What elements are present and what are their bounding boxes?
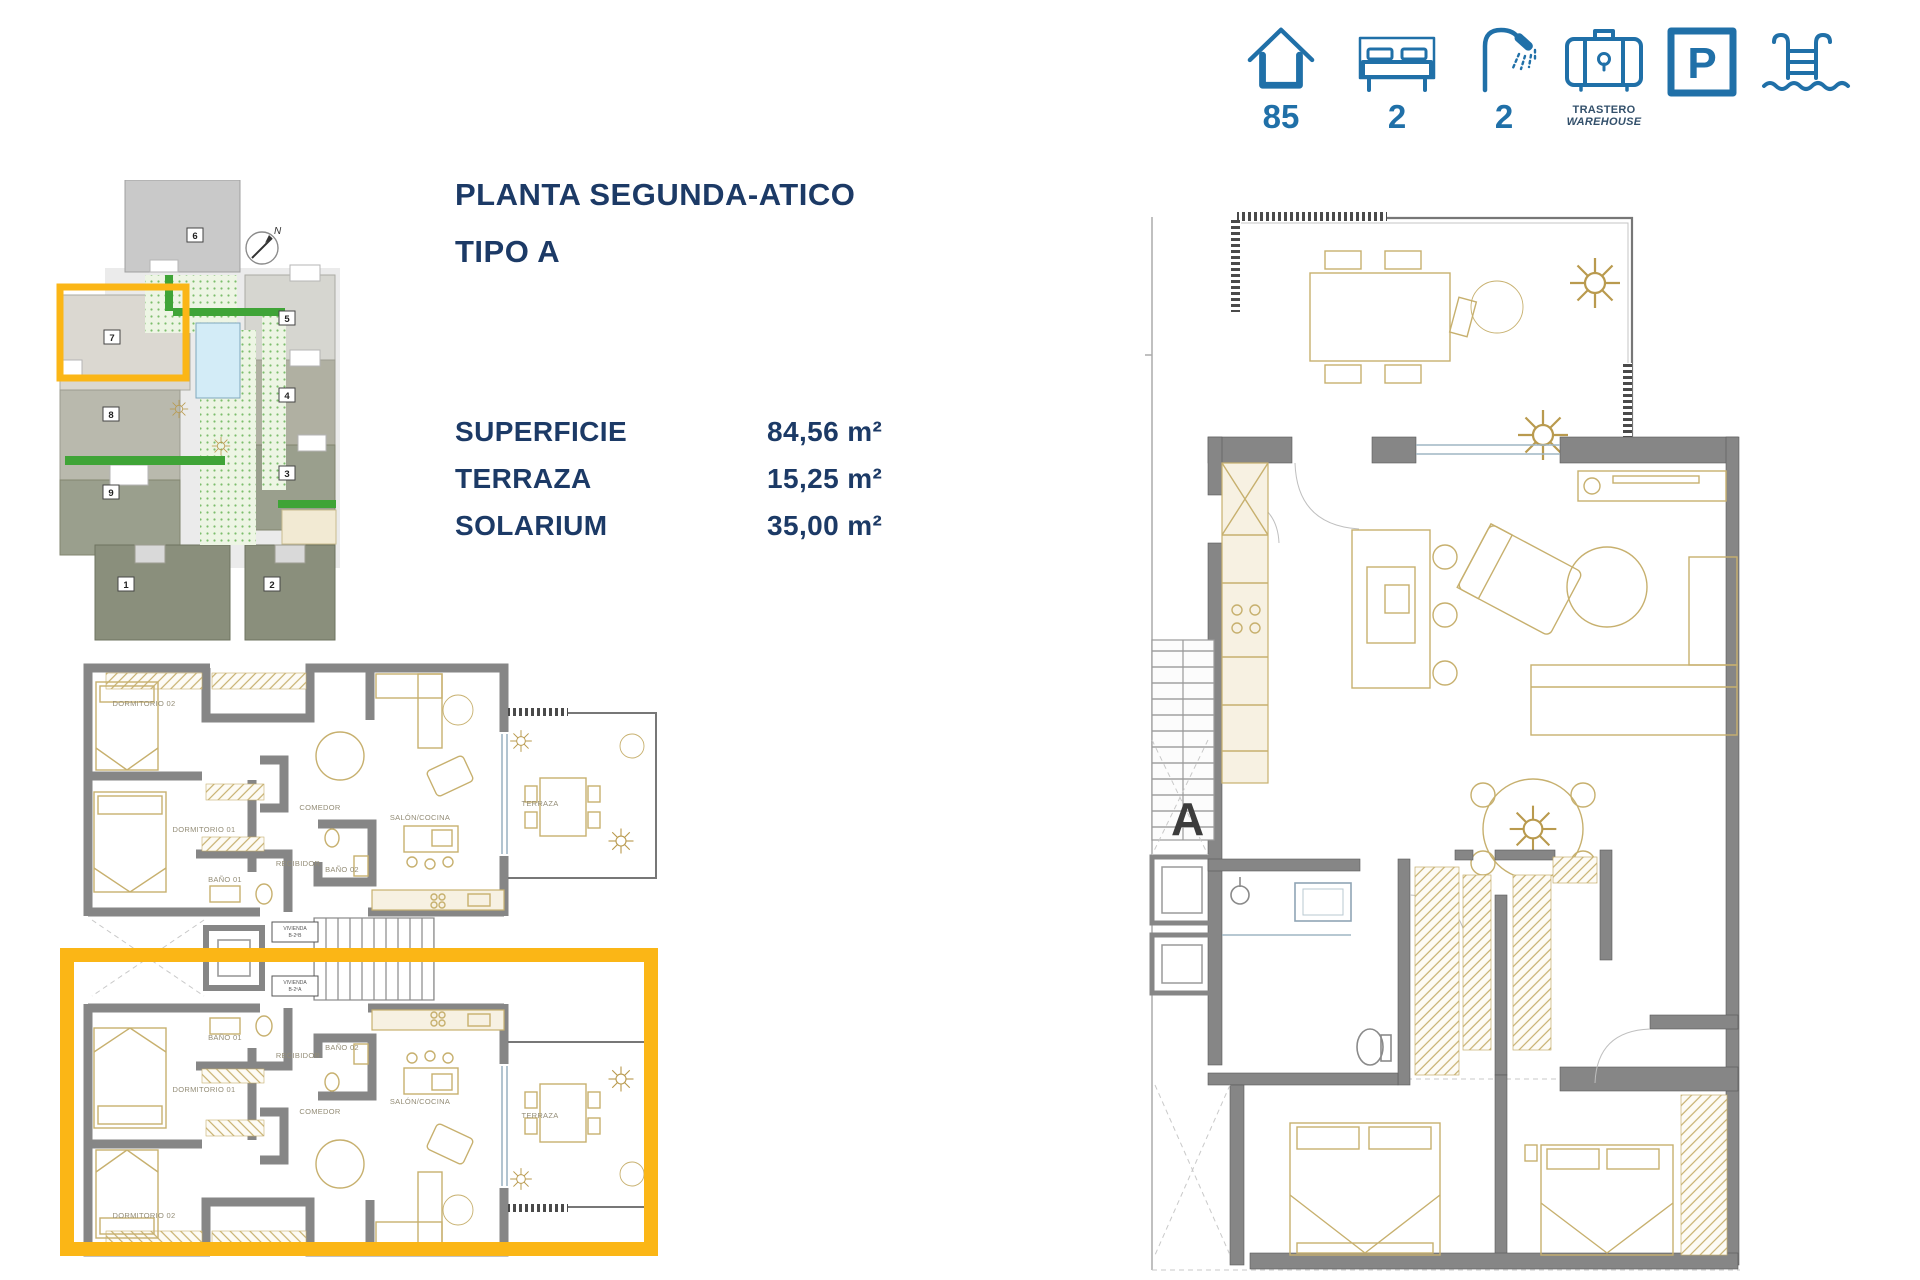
room-label: BAÑO 01 (208, 1033, 242, 1042)
site-pool (196, 323, 240, 398)
page-subtitle: TIPO A (455, 223, 855, 280)
area-value: 84,56 m² (767, 408, 882, 455)
surface-value: 85 (1263, 100, 1300, 134)
warehouse-icon (1562, 22, 1646, 96)
unit-tag-line1: VIVIENDA (283, 926, 307, 932)
room-label: TERRAZA (521, 1111, 558, 1120)
feature-pool (1760, 30, 1852, 94)
area-label: SOLARIUM (455, 502, 767, 549)
feature-storage: TRASTERO WAREHOUSE (1556, 22, 1652, 128)
kitchen-living (1222, 463, 1737, 879)
block-number: 8 (108, 410, 113, 421)
elevator (1152, 935, 1212, 993)
area-label: TERRAZA (455, 455, 767, 502)
floor-plan-large: A (1145, 195, 1765, 1275)
house-icon (1244, 24, 1318, 94)
area-label: SUPERFICIE (455, 408, 767, 455)
storage-label-es: TRASTERO (1573, 104, 1636, 116)
feature-surface: 85 (1238, 24, 1324, 134)
room-label: COMEDOR (299, 803, 341, 812)
walls (1208, 437, 1739, 1265)
room-label: BAÑO 02 (325, 865, 359, 874)
block-number: 7 (109, 333, 114, 344)
table-row: TERRAZA 15,25 m² (455, 455, 882, 502)
areas-table: SUPERFICIE 84,56 m² TERRAZA 15,25 m² SOL… (455, 408, 882, 549)
room-labels-top: DORMITORIO 02 DORMITORIO 01 BAÑO 01 BAÑO… (113, 699, 559, 884)
parking-icon: P (1666, 26, 1738, 98)
site-plan: N 1 2 3 4 5 6 7 8 9 (50, 180, 370, 650)
title-block: PLANTA SEGUNDA-ATICO TIPO A (455, 166, 855, 280)
bedrooms-count: 2 (1388, 100, 1406, 134)
room-label: DORMITORIO 01 (173, 825, 236, 834)
room-label: COMEDOR (299, 1107, 341, 1116)
room-label: DORMITORIO 01 (173, 1085, 236, 1094)
unit-tag-line2: B-2ºB (289, 933, 303, 939)
feature-bedrooms: 2 (1352, 32, 1442, 134)
room-label: TERRAZA (521, 799, 558, 808)
brochure-page: PLANTA SEGUNDA-ATICO TIPO A SUPERFICIE 8… (0, 0, 1920, 1280)
section-label: A (1171, 793, 1204, 845)
room-label: SALÓN/COCINA (390, 1097, 450, 1106)
room-label: BAÑO 01 (208, 875, 242, 884)
unit-tag-bottom: VIVIENDA B-2ºA (272, 976, 318, 996)
unit-tag-line1: VIVIENDA (283, 980, 307, 986)
beds (1290, 1123, 1673, 1255)
feature-bathrooms: 2 (1462, 22, 1546, 134)
bathroom (1222, 877, 1391, 1065)
unit-tag-line2: B-2ºA (289, 987, 303, 993)
terrace (1231, 212, 1632, 460)
bed-icon (1355, 32, 1439, 94)
room-label: DORMITORIO 02 (113, 1211, 176, 1220)
room-label: DORMITORIO 02 (113, 699, 176, 708)
parking-letter: P (1687, 39, 1716, 88)
north-compass-icon: N (246, 226, 282, 264)
wardrobes (1415, 857, 1727, 1255)
room-label: BAÑO 02 (325, 1043, 359, 1052)
block-number: 5 (284, 314, 290, 325)
table-row: SOLARIUM 35,00 m² (455, 502, 882, 549)
floor-plan-small: VIVIENDA B-2ºB VIVIENDA B-2ºA DORMITORIO… (20, 660, 680, 1280)
block-number: 1 (123, 580, 129, 591)
area-value: 35,00 m² (767, 502, 882, 549)
table-row: SUPERFICIE 84,56 m² (455, 408, 882, 455)
bathrooms-count: 2 (1495, 100, 1513, 134)
block-number: 9 (108, 488, 113, 499)
block-number: 6 (192, 231, 197, 242)
unit-tag-top: VIVIENDA B-2ºB (272, 922, 318, 942)
area-value: 15,25 m² (767, 455, 882, 502)
shower-icon (1469, 22, 1539, 94)
storage-label-en: WAREHOUSE (1567, 116, 1642, 128)
page-title: PLANTA SEGUNDA-ATICO (455, 166, 855, 223)
room-label: RECIBIDOR (276, 859, 321, 868)
room-label: RECIBIDOR (276, 1051, 321, 1060)
block-number: 3 (284, 469, 289, 480)
feature-parking: P (1664, 26, 1740, 98)
room-label: SALÓN/COCINA (390, 813, 450, 822)
room-labels-bottom: DORMITORIO 02 DORMITORIO 01 BAÑO 01 BAÑO… (113, 1033, 559, 1220)
block-number: 4 (284, 391, 290, 402)
north-label: N (274, 226, 282, 237)
pool-icon (1760, 30, 1852, 94)
block-number: 2 (269, 580, 274, 591)
